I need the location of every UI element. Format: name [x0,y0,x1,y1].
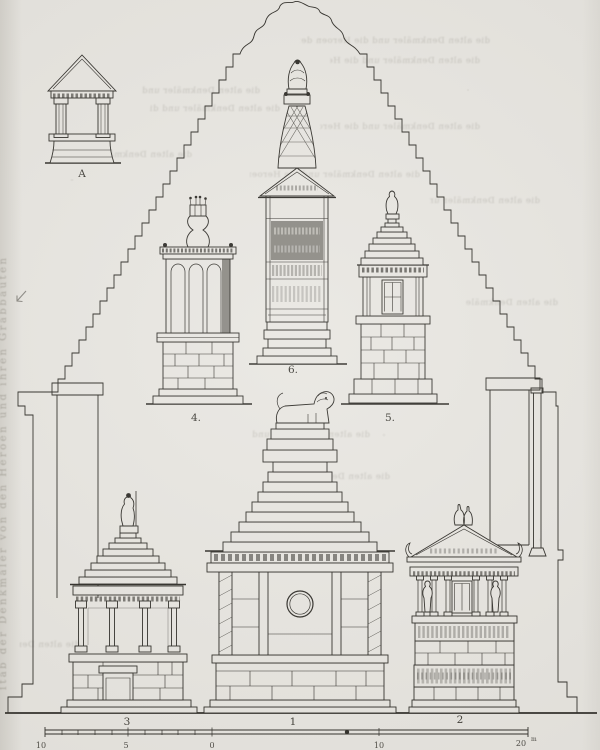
label-monument-1: 1 [290,716,297,728]
statue-finial [121,496,134,526]
scale-bar: 10 5 0 10 20 m [36,727,537,750]
monuments-drawing: A 4. [0,0,600,750]
ink-blemish-arrow [17,291,26,302]
label-monument-4: 4. [191,412,201,424]
scale-end-unit: m [531,736,537,743]
scale-tick-label: 5 [123,741,128,750]
apex-statue-group [454,505,472,526]
lion-sculpture [276,392,334,423]
monument-3: 3 [61,491,197,728]
label-monument-a: A [77,168,86,180]
monument-5: 5. [341,191,449,424]
statue-finial [386,191,398,214]
scale-tick-label: 10 [36,741,46,750]
label-monument-5: 5. [385,412,395,424]
monument-1: 1 [204,392,396,728]
scale-tick-label: 0 [209,741,214,750]
eagle-finial [295,60,300,65]
monument-a: A [45,55,121,180]
scale-dot [345,730,349,734]
scale-end-label: 20 [516,739,526,748]
colonnade [75,601,180,652]
scale-tick-label: 10 [374,741,384,750]
engraving-plate: die alten Denkmäler und die Heroen der B… [0,0,600,750]
monument-6: 6. [249,60,347,376]
label-monument-2: 2 [457,714,464,726]
temple-colonnade [416,575,508,616]
monument-4: 4. [146,196,252,424]
right-pier-outline [486,378,546,556]
label-monument-3: 3 [124,716,131,728]
intercolumnar-statue [423,581,432,612]
monument-2: 2 [406,505,523,727]
label-monument-6: 6. [288,364,298,376]
